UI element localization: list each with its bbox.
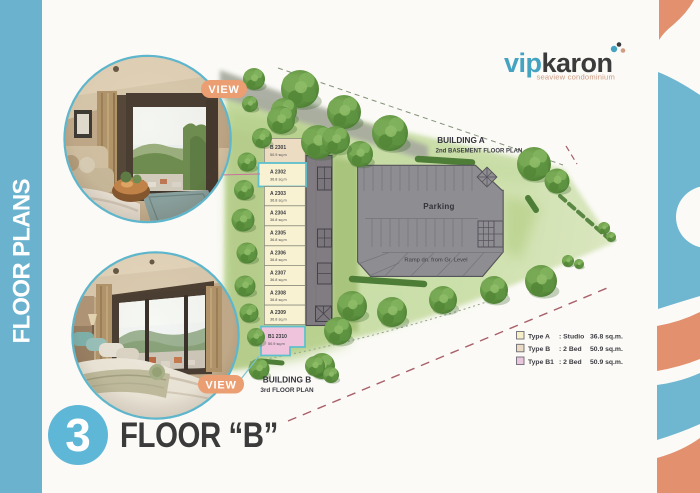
svg-text:Parking: Parking	[423, 202, 454, 211]
svg-text:VIEW: VIEW	[208, 84, 239, 96]
svg-text:50.9 sq.m.: 50.9 sq.m.	[590, 346, 623, 353]
svg-text:A 2304: A 2304	[270, 211, 286, 217]
svg-text:36.8 sq.m: 36.8 sq.m	[270, 258, 287, 262]
svg-text:Type A: Type A	[528, 333, 550, 340]
svg-text:36.8 sq.m: 36.8 sq.m	[270, 278, 287, 282]
svg-text:BUILDING A: BUILDING A	[437, 136, 485, 145]
svg-text:: 2 Bed: : 2 Bed	[559, 346, 582, 353]
svg-text:FLOOR PLANS: FLOOR PLANS	[9, 179, 36, 344]
svg-text:A 2307: A 2307	[270, 270, 286, 276]
svg-text:36.8 sq.m: 36.8 sq.m	[270, 218, 287, 222]
svg-text:50.9 sq.m.: 50.9 sq.m.	[590, 359, 623, 366]
svg-text:36.8 sq.m: 36.8 sq.m	[270, 298, 287, 302]
svg-text:Type B1: Type B1	[528, 359, 554, 366]
svg-text:Type B: Type B	[528, 346, 550, 353]
svg-text:36.8 sq.m: 36.8 sq.m	[270, 178, 287, 182]
svg-text:50.9 sq.m: 50.9 sq.m	[268, 342, 285, 346]
svg-text:B1 2310: B1 2310	[268, 334, 287, 340]
svg-text:3: 3	[65, 409, 91, 461]
svg-text:VIEW: VIEW	[205, 380, 236, 392]
svg-text:A 2302: A 2302	[270, 170, 286, 176]
svg-text:seaview condominium: seaview condominium	[536, 73, 615, 82]
svg-text:: Studio: : Studio	[559, 333, 584, 340]
svg-text:: 2 Bed: : 2 Bed	[559, 359, 582, 366]
svg-text:2nd BASEMENT FLOOR PLAN: 2nd BASEMENT FLOOR PLAN	[436, 149, 523, 155]
svg-text:A 2305: A 2305	[270, 231, 286, 237]
svg-text:36.8 sq.m: 36.8 sq.m	[270, 317, 287, 321]
svg-text:A 2309: A 2309	[270, 310, 286, 316]
svg-text:A 2303: A 2303	[270, 191, 286, 197]
svg-text:36.8 sq.m: 36.8 sq.m	[270, 199, 287, 203]
svg-text:Ramp dn. from Gr. Level: Ramp dn. from Gr. Level	[404, 258, 467, 264]
svg-text:50.9 sq.m: 50.9 sq.m	[270, 153, 287, 157]
svg-text:36.8 sq.m.: 36.8 sq.m.	[590, 333, 623, 340]
svg-text:3rd FLOOR PLAN: 3rd FLOOR PLAN	[260, 387, 314, 394]
svg-text:36.8 sq.m: 36.8 sq.m	[270, 238, 287, 242]
svg-text:FLOOR “B”: FLOOR “B”	[120, 416, 278, 455]
svg-text:BUILDING B: BUILDING B	[263, 375, 311, 385]
svg-text:A 2308: A 2308	[270, 290, 286, 296]
svg-text:A 2306: A 2306	[270, 251, 286, 257]
